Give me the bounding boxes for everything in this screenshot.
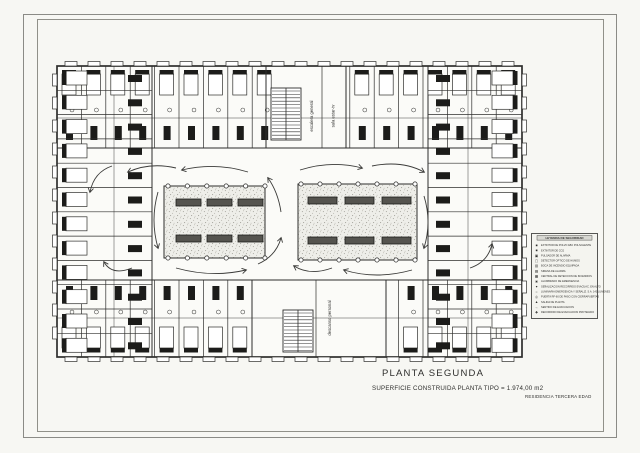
bed-headboard xyxy=(452,70,466,75)
bed-symbol xyxy=(86,74,100,95)
bed-headboard xyxy=(62,71,67,85)
wardrobe-symbol xyxy=(128,245,142,252)
wardrobe-symbol xyxy=(164,286,171,300)
legend-symbol-3: ▢ xyxy=(535,259,538,263)
legend-symbol-10: ◎ xyxy=(535,295,538,299)
bed-symbol xyxy=(233,327,247,348)
legend-label-1: EXTINTOR DE CO2 xyxy=(541,248,565,252)
bed-symbol xyxy=(111,74,125,95)
window-tick xyxy=(433,357,445,362)
bed-headboard xyxy=(62,168,67,182)
courtyard-bench xyxy=(176,199,201,206)
window-tick xyxy=(134,357,146,362)
wardrobe-symbol xyxy=(237,126,244,140)
window-tick xyxy=(53,166,58,178)
wardrobe-symbol xyxy=(164,126,171,140)
window-tick xyxy=(53,281,58,293)
legend-symbol-7: ◙ xyxy=(535,280,537,284)
window-tick xyxy=(456,357,468,362)
bed-headboard xyxy=(62,217,67,231)
bed-symbol xyxy=(160,74,174,95)
column xyxy=(263,184,267,188)
window-tick xyxy=(272,357,284,362)
wardrobe-symbol xyxy=(359,126,366,140)
bed-symbol xyxy=(66,265,87,279)
window-tick xyxy=(502,357,514,362)
bed-symbol xyxy=(477,74,491,95)
bed-symbol xyxy=(233,74,247,95)
bed-symbol xyxy=(66,144,87,158)
bed-headboard xyxy=(513,338,518,352)
column xyxy=(318,258,322,262)
legend-symbol-9: ○ xyxy=(535,290,537,294)
bed-symbol xyxy=(208,74,222,95)
window-tick xyxy=(53,143,58,155)
column xyxy=(337,258,341,262)
wardrobe-symbol xyxy=(188,286,195,300)
bed-headboard xyxy=(477,70,491,75)
bed-headboard xyxy=(428,70,442,75)
column xyxy=(205,184,209,188)
legend-label-3: DETECTOR OPTICO DE HUMOS xyxy=(541,259,580,263)
bed-headboard xyxy=(513,120,518,134)
legend-symbol-0: ■ xyxy=(535,244,537,248)
window-tick xyxy=(522,143,527,155)
bed-symbol xyxy=(66,193,87,207)
bed-symbol xyxy=(492,71,513,85)
column xyxy=(299,258,303,262)
legend-symbol-6: ▦ xyxy=(535,274,538,278)
legend-symbol-11: ▲ xyxy=(535,300,538,304)
bed-headboard xyxy=(160,348,174,353)
window-tick xyxy=(341,357,353,362)
courtyard-bench xyxy=(238,199,263,206)
bed-headboard xyxy=(513,241,518,255)
bed-headboard xyxy=(111,70,125,75)
window-tick xyxy=(53,235,58,247)
column xyxy=(166,256,170,260)
window-tick xyxy=(53,120,58,132)
column xyxy=(337,182,341,186)
floor-plan-canvas: LEYENDA DE SEGURIDAD ■EXTINTOR DE POLVO … xyxy=(0,0,640,453)
legend-label-5: SIRENA DE ALARMA xyxy=(541,269,566,273)
bed-headboard xyxy=(62,338,67,352)
courtyard-bench xyxy=(382,197,411,204)
bed-symbol xyxy=(492,265,513,279)
bed-symbol xyxy=(66,241,87,255)
bed-headboard xyxy=(62,241,67,255)
window-tick xyxy=(272,62,284,67)
column xyxy=(394,182,398,186)
bed-headboard xyxy=(184,70,198,75)
legend-symbol-5: ▤ xyxy=(535,269,538,273)
window-tick xyxy=(522,258,527,270)
bed-headboard xyxy=(62,95,67,109)
wardrobe-symbol xyxy=(128,124,142,131)
window-tick xyxy=(410,357,422,362)
bed-symbol xyxy=(492,290,513,304)
window-tick xyxy=(111,62,123,67)
wardrobe-symbol xyxy=(481,126,488,140)
wardrobe-symbol xyxy=(436,294,450,301)
courtyard-bench xyxy=(345,237,374,244)
bed-symbol xyxy=(66,217,87,231)
bed-symbol xyxy=(184,327,198,348)
bed-symbol xyxy=(452,74,466,95)
wardrobe-symbol xyxy=(212,126,219,140)
bed-headboard xyxy=(86,70,100,75)
bed-symbol xyxy=(492,95,513,109)
column xyxy=(413,182,417,186)
window-tick xyxy=(433,62,445,67)
bed-symbol xyxy=(257,74,271,95)
column xyxy=(166,184,170,188)
window-tick xyxy=(249,62,261,67)
bed-symbol xyxy=(492,241,513,255)
bed-headboard xyxy=(513,95,518,109)
window-tick xyxy=(65,357,77,362)
wardrobe-symbol xyxy=(436,99,450,106)
wardrobe-symbol xyxy=(128,148,142,155)
window-tick xyxy=(53,97,58,109)
wardrobe-symbol xyxy=(408,126,415,140)
window-tick xyxy=(53,189,58,201)
bed-symbol xyxy=(66,314,87,328)
bed-symbol xyxy=(66,71,87,85)
bed-symbol xyxy=(477,327,491,348)
bed-symbol xyxy=(404,74,418,95)
wardrobe-symbol xyxy=(408,286,415,300)
window-tick xyxy=(180,357,192,362)
bed-symbol xyxy=(492,314,513,328)
window-tick xyxy=(387,62,399,67)
wardrobe-symbol xyxy=(90,126,97,140)
window-tick xyxy=(522,97,527,109)
wardrobe-symbol xyxy=(456,286,463,300)
window-tick xyxy=(295,357,307,362)
courtyard-bench xyxy=(308,237,337,244)
wardrobe-symbol xyxy=(436,269,450,276)
courtyard-left xyxy=(164,186,265,258)
bed-symbol xyxy=(66,168,87,182)
courtyard-bench xyxy=(238,235,263,242)
label-stair-general: escalera general xyxy=(309,100,314,131)
column xyxy=(224,184,228,188)
legend-label-0: EXTINTOR DE POLVO ABC POLIVALENTE xyxy=(541,243,591,247)
drawing-sheet: LEYENDA DE SEGURIDAD ■EXTINTOR DE POLVO … xyxy=(0,0,640,453)
window-tick xyxy=(88,62,100,67)
window-tick xyxy=(203,357,215,362)
window-tick xyxy=(318,62,330,67)
bed-headboard xyxy=(135,70,149,75)
bed-headboard xyxy=(513,71,518,85)
bed-symbol xyxy=(492,338,513,352)
project-name: RESIDENCIA TERCERA EDAD xyxy=(525,394,592,399)
bed-symbol xyxy=(66,338,87,352)
column xyxy=(356,258,360,262)
column xyxy=(413,258,417,262)
window-tick xyxy=(53,258,58,270)
bed-headboard xyxy=(513,314,518,328)
column xyxy=(299,182,303,186)
wardrobe-symbol xyxy=(383,126,390,140)
bed-headboard xyxy=(513,217,518,231)
wardrobe-symbol xyxy=(128,172,142,179)
legend-symbol-2: ▣ xyxy=(535,254,538,258)
wardrobe-symbol xyxy=(436,197,450,204)
courtyard-bench xyxy=(382,237,411,244)
column xyxy=(224,256,228,260)
wardrobe-symbol xyxy=(128,294,142,301)
courtyard-bench xyxy=(308,197,337,204)
window-tick xyxy=(522,189,527,201)
bed-symbol xyxy=(492,144,513,158)
wardrobe-symbol xyxy=(115,286,122,300)
window-tick xyxy=(364,357,376,362)
wardrobe-symbol xyxy=(128,342,142,349)
legend-symbol-13: ✚ xyxy=(535,310,538,314)
bed-headboard xyxy=(477,348,491,353)
window-tick xyxy=(180,62,192,67)
label-descanso-personal: descanso personal xyxy=(327,300,332,335)
column xyxy=(375,182,379,186)
window-tick xyxy=(65,62,77,67)
legend-symbol-1: ■ xyxy=(535,249,537,253)
courtyard-right xyxy=(298,184,417,260)
window-tick xyxy=(479,62,491,67)
window-tick xyxy=(502,62,514,67)
bed-headboard xyxy=(513,168,518,182)
bed-symbol xyxy=(111,327,125,348)
bed-headboard xyxy=(513,290,518,304)
wardrobe-symbol xyxy=(436,245,450,252)
bed-headboard xyxy=(62,144,67,158)
window-tick xyxy=(456,62,468,67)
bed-symbol xyxy=(66,290,87,304)
window-tick xyxy=(88,357,100,362)
legend-label-13: RECORRIDO DE EVACUACION PROTEGIDO xyxy=(541,310,594,314)
wardrobe-symbol xyxy=(128,99,142,106)
bed-headboard xyxy=(513,193,518,207)
window-tick xyxy=(249,357,261,362)
window-tick xyxy=(522,235,527,247)
window-tick xyxy=(157,62,169,67)
window-tick xyxy=(203,62,215,67)
legend-label-2: PULSADOR DE ALARMA xyxy=(541,253,571,257)
wardrobe-symbol xyxy=(128,75,142,82)
bed-headboard xyxy=(208,70,222,75)
window-tick xyxy=(479,357,491,362)
bed-symbol xyxy=(355,74,369,95)
window-tick xyxy=(157,357,169,362)
wardrobe-symbol xyxy=(128,221,142,228)
bed-headboard xyxy=(62,120,67,134)
bed-symbol xyxy=(184,74,198,95)
column xyxy=(375,258,379,262)
legend-symbol-4: ▥ xyxy=(535,264,538,268)
window-tick xyxy=(111,357,123,362)
wardrobe-symbol xyxy=(128,197,142,204)
courtyard-bench xyxy=(207,235,232,242)
bed-headboard xyxy=(86,348,100,353)
column xyxy=(318,182,322,186)
bed-headboard xyxy=(452,348,466,353)
legend-label-4: BOCA DE INCENDIO EQUIPADA xyxy=(541,264,579,268)
wardrobe-symbol xyxy=(481,286,488,300)
bed-symbol xyxy=(208,327,222,348)
window-tick xyxy=(226,357,238,362)
window-tick xyxy=(522,281,527,293)
courtyard-bench xyxy=(207,199,232,206)
bed-symbol xyxy=(452,327,466,348)
window-tick xyxy=(522,327,527,339)
legend-label-6: CENTRAL DE DETECCION DE INCENDIOS xyxy=(541,274,592,278)
bed-headboard xyxy=(62,265,67,279)
column xyxy=(205,256,209,260)
bed-headboard xyxy=(111,348,125,353)
bed-headboard xyxy=(62,314,67,328)
wardrobe-symbol xyxy=(436,148,450,155)
wardrobe-symbol xyxy=(90,286,97,300)
wardrobe-symbol xyxy=(212,286,219,300)
legend-title: LEYENDA DE SEGURIDAD xyxy=(545,236,584,240)
bed-symbol xyxy=(66,95,87,109)
courtyard-bench xyxy=(176,235,201,242)
wardrobe-symbol xyxy=(128,269,142,276)
wardrobe-symbol xyxy=(436,172,450,179)
wardrobe-symbol xyxy=(188,126,195,140)
column xyxy=(185,256,189,260)
bed-headboard xyxy=(62,290,67,304)
legend-symbol-8: ● xyxy=(535,285,537,289)
bed-symbol xyxy=(160,327,174,348)
courtyard-bench xyxy=(345,197,374,204)
bed-symbol xyxy=(492,217,513,231)
wardrobe-symbol xyxy=(128,318,142,325)
bed-headboard xyxy=(404,348,418,353)
bed-headboard xyxy=(184,348,198,353)
wardrobe-symbol xyxy=(115,126,122,140)
legend-symbol-12: → xyxy=(535,305,538,309)
wardrobe-symbol xyxy=(237,286,244,300)
bed-headboard xyxy=(404,70,418,75)
column xyxy=(244,184,248,188)
window-tick xyxy=(318,357,330,362)
window-tick xyxy=(364,62,376,67)
legend-label-7: ALUMBRADO DE EMERGENCIA xyxy=(541,279,580,283)
window-tick xyxy=(53,327,58,339)
legend-label-12: SENTIDO DE EVACUACION xyxy=(541,305,574,309)
column xyxy=(244,256,248,260)
bed-symbol xyxy=(66,120,87,134)
window-tick xyxy=(53,304,58,316)
window-tick xyxy=(53,74,58,86)
window-tick xyxy=(522,212,527,224)
column xyxy=(185,184,189,188)
bed-symbol xyxy=(379,74,393,95)
window-tick xyxy=(387,357,399,362)
wardrobe-symbol xyxy=(261,126,268,140)
bed-headboard xyxy=(257,70,271,75)
bed-symbol xyxy=(492,193,513,207)
column xyxy=(356,182,360,186)
bed-symbol xyxy=(492,120,513,134)
wardrobe-symbol xyxy=(436,124,450,131)
bed-headboard xyxy=(233,70,247,75)
bed-symbol xyxy=(404,327,418,348)
legend-box: LEYENDA DE SEGURIDAD ■EXTINTOR DE POLVO … xyxy=(532,234,611,319)
bed-headboard xyxy=(355,70,369,75)
wardrobe-symbol xyxy=(436,318,450,325)
bed-symbol xyxy=(492,168,513,182)
wardrobe-symbol xyxy=(436,75,450,82)
window-tick xyxy=(410,62,422,67)
legend-label-10: PUERTA RF-60 DE PASO CON CIERRAPUERTAS xyxy=(541,295,599,299)
window-tick xyxy=(341,62,353,67)
bed-headboard xyxy=(513,144,518,158)
window-tick xyxy=(134,62,146,67)
bed-headboard xyxy=(160,70,174,75)
window-tick xyxy=(53,212,58,224)
legend-label-11: SALIDA DE PLANTA xyxy=(541,300,565,304)
bed-symbol xyxy=(86,327,100,348)
window-tick xyxy=(522,120,527,132)
window-tick xyxy=(295,62,307,67)
bed-headboard xyxy=(513,265,518,279)
wardrobe-symbol xyxy=(456,126,463,140)
bed-headboard xyxy=(62,193,67,207)
area-note: SUPERFICIE CONSTRUIDA PLANTA TIPO = 1.97… xyxy=(372,385,544,392)
column xyxy=(394,258,398,262)
bed-headboard xyxy=(208,348,222,353)
window-tick xyxy=(522,304,527,316)
label-sala-estar: sala estar-tv xyxy=(331,104,336,128)
wardrobe-symbol xyxy=(436,342,450,349)
wardrobe-symbol xyxy=(436,221,450,228)
window-tick xyxy=(522,166,527,178)
window-tick xyxy=(226,62,238,67)
plan-title: PLANTA SEGUNDA xyxy=(382,368,484,379)
bed-headboard xyxy=(233,348,247,353)
bed-headboard xyxy=(379,70,393,75)
window-tick xyxy=(522,74,527,86)
